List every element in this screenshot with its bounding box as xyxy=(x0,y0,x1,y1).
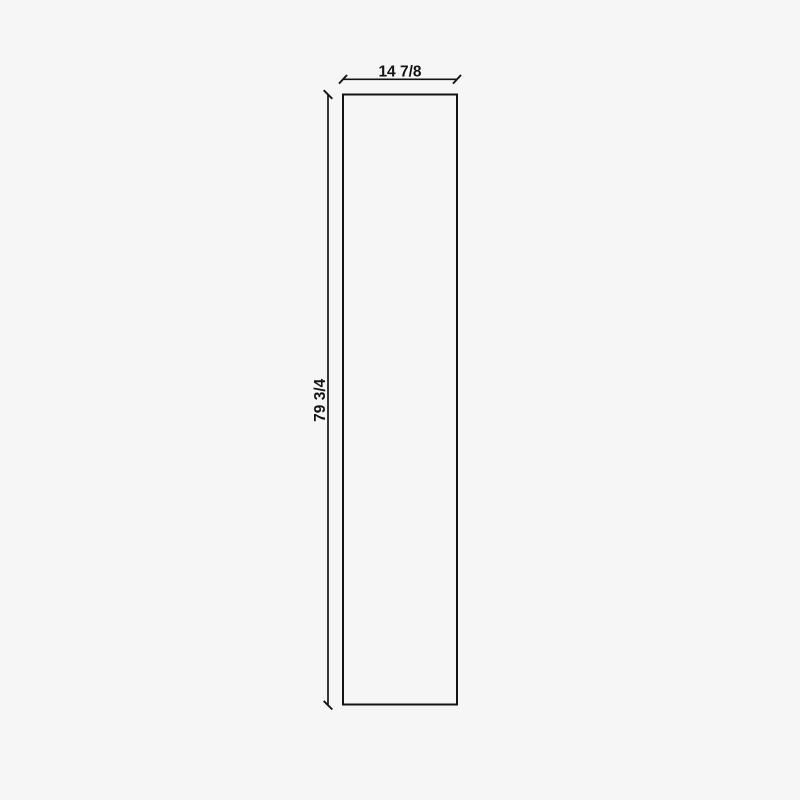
svg-text:79 3/4: 79 3/4 xyxy=(312,378,329,421)
svg-text:14 7/8: 14 7/8 xyxy=(378,63,421,80)
